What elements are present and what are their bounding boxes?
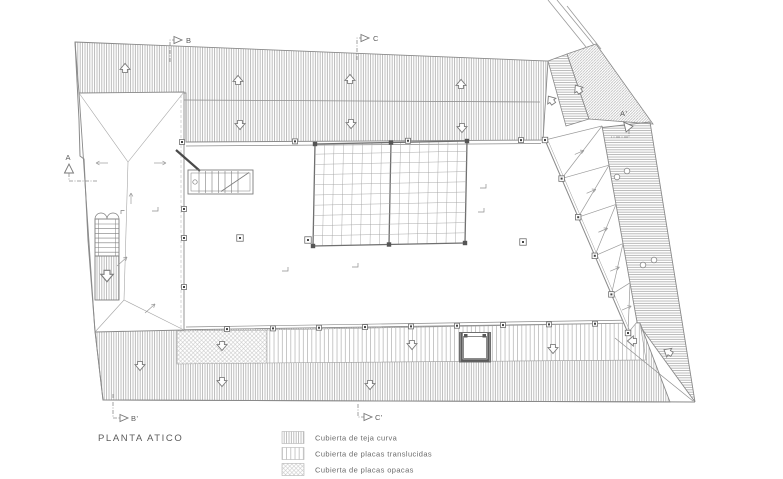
translucent-plates-area [267,323,646,363]
eave-pilaster-dot [181,141,183,143]
section-arrow-icon [65,164,74,173]
legend-swatch-dense-hatch [282,432,304,444]
sawtooth-pilaster-dot [544,139,546,141]
legend-label: Cubierta de placas translucidas [315,450,432,459]
elbow-mark [480,184,486,188]
column-marker-dot [239,237,241,239]
section-label: A' [620,109,628,118]
floor-plan-drawing: B C A A' B' C' PLANTA ATICO Cubierta de … [0,0,783,479]
south-pilaster-dot [272,327,274,329]
south-pilaster-dot [456,325,458,327]
section-label: B' [131,414,139,423]
party-wall-lines [548,0,601,49]
detail-marks [152,184,486,271]
sawtooth-pilaster-dot [594,255,596,257]
grid-node [389,140,393,144]
elbow-mark [282,267,288,271]
section-arrow-icon [364,414,372,421]
top-right-roof-block [548,0,653,126]
section-label: B [186,36,192,45]
south-pilaster-dot [410,325,412,327]
grid-node [463,241,467,245]
grid-node [313,142,317,146]
west-pilaster-dot [183,237,185,239]
skylight-grid [311,139,469,248]
legend-item-placas-opacas: Cubierta de placas opacas [282,464,414,476]
south-pilaster-dot [548,323,550,325]
section-arrow-icon [361,35,369,42]
section-arrow-icon [120,415,128,422]
elbow-mark [478,208,484,212]
sawtooth-pilaster-dot [577,216,579,218]
architectural-plan-canvas: B C A A' B' C' PLANTA ATICO Cubierta de … [0,0,783,479]
legend: Cubierta de teja curva Cubierta de placa… [282,432,432,476]
eave-pilaster-dot [294,140,296,142]
elbow-mark [352,263,358,267]
stair-central [176,150,253,194]
plan-title: PLANTA ATICO [98,433,183,444]
section-marker-c-prime: C' [358,404,383,422]
sawtooth-pilaster-dot [561,178,563,180]
south-pilaster-dot [318,327,320,329]
west-pilaster-dot [183,286,185,288]
column-marker-dot [307,239,309,241]
grid-node [465,139,469,143]
legend-item-placas-translucidas: Cubierta de placas translucidas [282,448,432,460]
bottom-roof-band [95,323,693,402]
section-label: C [373,34,379,43]
sawtooth-pilaster-dot [627,332,629,334]
chimney-box [460,333,491,363]
column-markers [237,235,527,246]
grid-node [311,244,315,248]
legend-swatch-crosshatch [282,464,304,476]
vent-symbol [544,93,557,106]
section-label: A [66,153,72,162]
legend-label: Cubierta de placas opacas [315,466,414,475]
sawtooth-pilaster-dot [610,293,612,295]
south-pilaster-dot [364,326,366,328]
legend-item-teja-curva: Cubierta de teja curva [282,432,398,444]
legend-label: Cubierta de teja curva [315,434,398,443]
column-marker-dot [522,241,524,243]
eave-pilaster-dot [520,139,522,141]
eave-pilaster-dot [407,140,409,142]
stair-treads [199,171,238,193]
south-pilaster-dot [226,328,228,330]
south-pilaster-dot [502,324,504,326]
section-label: C' [375,413,383,422]
grid-node [387,242,391,246]
section-arrow-icon [174,37,182,44]
west-pilaster-dot [183,208,185,210]
south-pilaster-dot [594,323,596,325]
legend-swatch-sparse-hatch [282,448,304,460]
